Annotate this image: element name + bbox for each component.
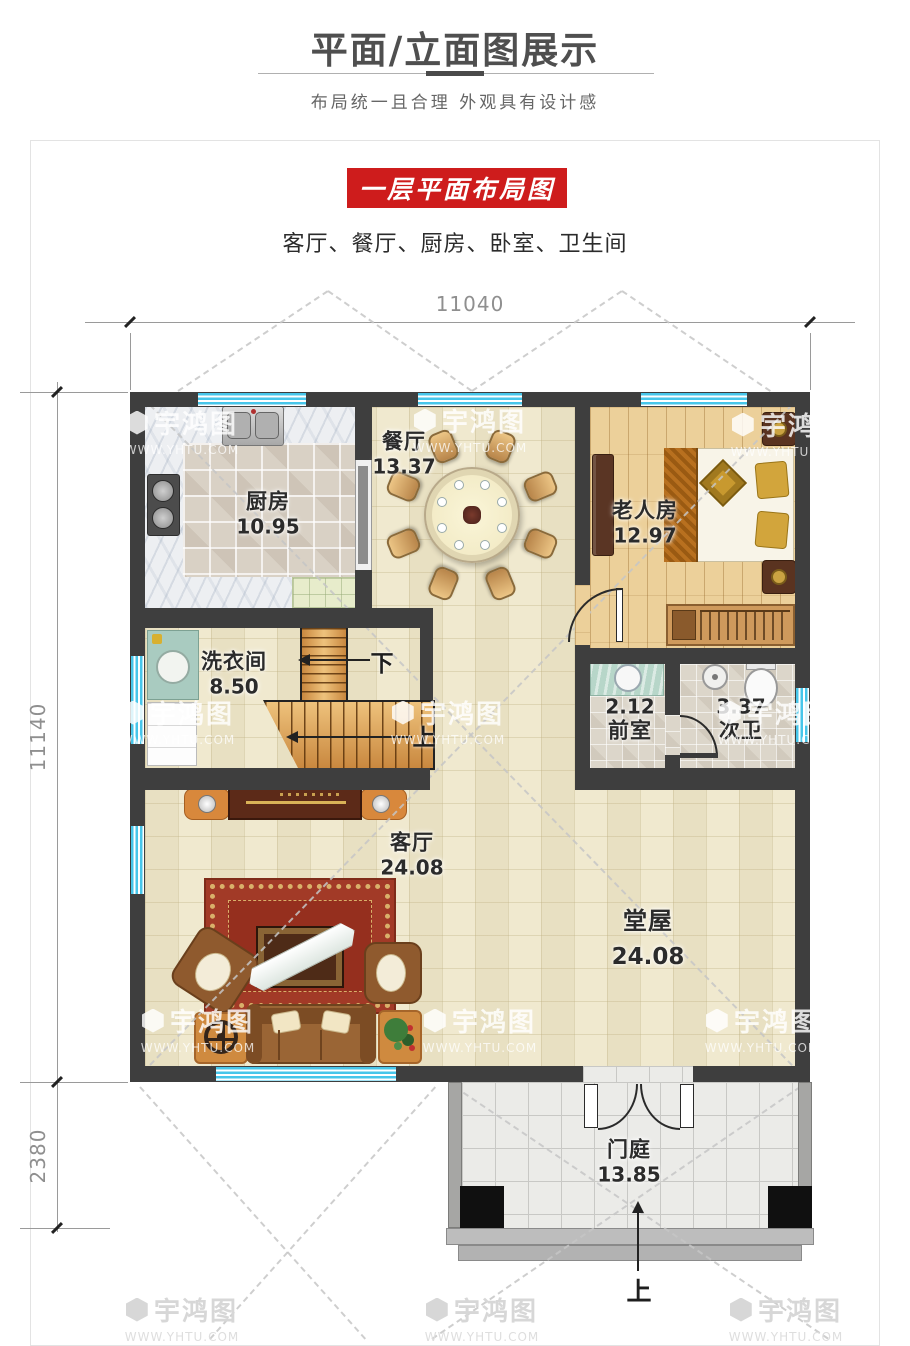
room-list: 客厅、餐厅、厨房、卧室、卫生间: [0, 226, 910, 258]
wall-bath-divider: [665, 755, 680, 768]
window: [197, 392, 307, 407]
laundry-item: [152, 634, 162, 644]
bed-pillow: [754, 511, 789, 550]
porch-column-left: [460, 1186, 504, 1228]
window: [795, 687, 810, 743]
room-label-anteroom: 2.12 前室: [605, 694, 654, 743]
porch-step-1: [446, 1228, 814, 1245]
dim-top-width: 11040: [436, 292, 505, 316]
stairs-down-arrow: [308, 659, 370, 661]
window: [130, 655, 145, 745]
room-label-elder-room: 老人房 12.97: [612, 498, 678, 547]
wall-bedroom-left: [575, 407, 590, 585]
room-label-living-room: 客厅 24.08: [380, 830, 443, 879]
wall-bath-divider: [665, 664, 680, 715]
wall-kitchen: [355, 407, 372, 460]
dim-line-left: [57, 382, 58, 1232]
bath-door-leaf: [680, 753, 718, 758]
wall: [523, 392, 640, 407]
kitchen-faucet: [251, 409, 256, 414]
section-banner: 一层平面布局图: [347, 168, 567, 208]
wall: [795, 392, 810, 687]
bath-door-opening: [665, 715, 680, 755]
dining-centerpiece: [463, 506, 481, 524]
window: [640, 392, 748, 407]
wall-living-top: [130, 768, 430, 790]
tv-console-dots: [280, 793, 340, 796]
stairs-up-label: 上: [413, 718, 436, 752]
title-divider-accent: [426, 71, 484, 76]
anteroom-sink: [614, 664, 642, 692]
room-label-laundry: 洗衣间 8.50: [201, 649, 267, 698]
stairs-up-arrow: [296, 736, 412, 738]
dim-ext-left-2: [20, 1082, 128, 1083]
window: [215, 1066, 397, 1082]
dim-ext-left-1: [20, 392, 128, 393]
wall-stair-side: [420, 628, 433, 700]
page-title: 平面/立面图展示: [0, 20, 910, 74]
room-label-second-bath: 3.37 次卫: [716, 694, 765, 743]
armchair-cushion: [376, 954, 406, 992]
entry-door-leaf-left: [584, 1084, 598, 1128]
room-label-main-hall: 堂屋 24.08: [612, 907, 685, 971]
page-subtitle: 布局统一且合理 外观具有设计感: [0, 88, 910, 113]
room-label-dining: 餐厅 13.37: [372, 429, 435, 478]
laundry-cabinet: [147, 702, 197, 766]
dim-left-height: 11140: [26, 703, 50, 772]
kitchen-sliding-door: [358, 466, 368, 564]
table-plate: [437, 497, 447, 507]
sofa-seam: [278, 1030, 280, 1060]
nightstand-lamp: [771, 569, 787, 585]
entry-door-leaf-right: [680, 1084, 694, 1128]
stairs-up-arrowhead-icon: [286, 731, 298, 743]
window: [417, 392, 523, 407]
table-plate: [454, 480, 464, 490]
sofa-armrest: [246, 1004, 262, 1064]
stove-burner: [152, 480, 174, 502]
incense-burner-icon: [204, 1020, 238, 1054]
speaker-icon: [198, 795, 216, 813]
tv-screen-line: [246, 801, 346, 804]
entry-direction-label: 上: [626, 1272, 651, 1308]
room-label-kitchen: 厨房 10.95: [236, 489, 299, 538]
window: [130, 825, 145, 895]
entry-arrow: [637, 1213, 639, 1271]
table-plate: [437, 523, 447, 533]
porch-column-right: [768, 1186, 812, 1228]
wall: [130, 895, 145, 1082]
wardrobe-drawers: [672, 610, 696, 640]
shower-head-dot: [712, 674, 718, 680]
stairs-down-arrowhead-icon: [298, 654, 310, 666]
sofa-seam: [320, 1030, 322, 1060]
wall: [307, 392, 417, 407]
room-label-porch: 门庭 13.85: [597, 1137, 660, 1186]
porch-step-2: [458, 1245, 802, 1261]
wall-hall-top: [575, 768, 810, 790]
dim-ext-top-left: [130, 333, 131, 390]
wall: [130, 1066, 215, 1082]
wall-kitchen-bottom: [130, 608, 433, 628]
porch-threshold: [583, 1066, 693, 1082]
speaker-icon: [372, 795, 390, 813]
dim-ext-left-3: [20, 1228, 110, 1229]
dim-line-top: [85, 322, 855, 323]
floor-plan-poster: 平面/立面图展示 布局统一且合理 外观具有设计感 一层平面布局图 客厅、餐厅、厨…: [0, 0, 910, 1345]
wardrobe-hangers: [700, 610, 790, 640]
wall-bedroom-bottom: [575, 648, 810, 664]
wall: [693, 1066, 810, 1082]
washer-drum: [156, 650, 190, 684]
kitchen-sink-basin: [255, 412, 279, 439]
sofa-armrest: [360, 1004, 376, 1064]
bed-pillow: [754, 461, 789, 500]
kitchen-sink-basin: [227, 412, 251, 439]
sofa-backrest: [250, 1008, 372, 1024]
stairs-down-label: 下: [371, 644, 394, 678]
dim-porch-depth: 2380: [26, 1129, 50, 1184]
dim-ext-top-right: [810, 333, 811, 390]
wall: [795, 743, 810, 1082]
plant-icon: [384, 1018, 408, 1042]
stove-burner: [152, 507, 174, 529]
wall: [397, 1066, 583, 1082]
entry-arrowhead-icon: [632, 1201, 644, 1213]
bedroom-cabinet: [592, 454, 614, 556]
table-plate: [480, 480, 490, 490]
